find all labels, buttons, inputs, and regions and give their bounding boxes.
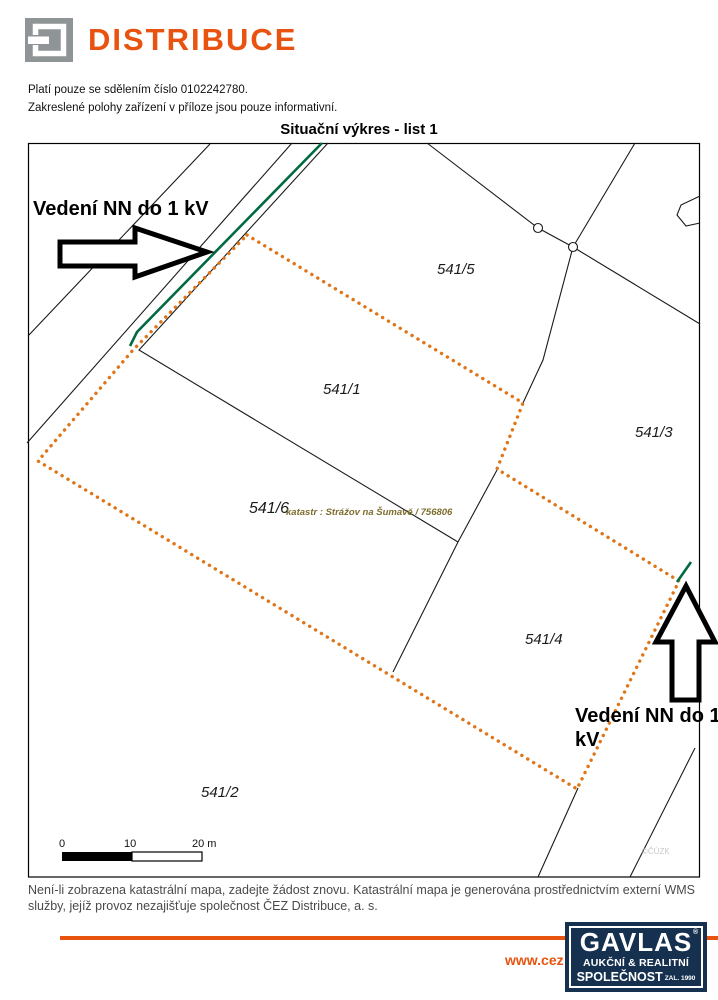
nn-label-bottom-line2: kV [575,729,599,752]
validity-note: Platí pouze se sdělením číslo 0102242780… [28,84,248,96]
gavlas-wordmark: GAVLAS® [580,929,692,955]
parcel-label-541-4: 541/4 [525,631,563,648]
scale-tick-10: 10 [124,838,136,850]
parcel-label-541-6: 541/6 [249,500,289,518]
cadastre-note: katastr : Strážov na Šumavě / 756806 [286,507,452,518]
nn-label-top: Vedení NN do 1 kV [33,198,209,221]
parcel-label-541-3: 541/3 [635,424,673,441]
cez-logo-icon [25,18,73,62]
gavlas-logo: GAVLAS® AUKČNÍ & REALITNÍ SPOLEČNOSTZAL.… [565,922,707,992]
arrow-right-icon [60,228,207,277]
scale-bar [62,852,202,861]
informative-note: Zakreslené polohy zařízení v příloze jso… [28,102,337,114]
website-link[interactable]: www.cez [505,952,564,968]
parcel-label-541-1: 541/1 [323,381,361,398]
gavlas-tagline1: AUKČNÍ & REALITNÍ [583,958,689,969]
gavlas-registered-mark: ® [693,929,699,936]
scale-tick-0: 0 [59,838,65,850]
map-watermark: ©ČÚZK [642,847,670,856]
annotation-arrows [60,228,715,700]
gavlas-tagline2: SPOLEČNOSTZAL. 1990 [577,971,696,984]
gavlas-tagline2-text: SPOLEČNOST [577,970,663,984]
scale-tick-20: 20 m [192,838,216,850]
gavlas-since: ZAL. 1990 [665,975,696,982]
page: { "page": { "header": { "brand": "DISTRI… [0,0,718,1000]
right-edge-structure [677,196,700,226]
gavlas-name-text: GAVLAS [580,927,692,957]
nn-line-bottom [677,562,691,582]
map-title: Situační výkres - list 1 [0,121,718,138]
parcel-label-541-2: 541/2 [201,784,239,801]
parcel-label-541-5: 541/5 [437,261,475,278]
nn-label-bottom-line1: Vedení NN do 1 [575,705,718,728]
map-canvas [0,0,718,1000]
brand-wordmark: DISTRIBUCE [88,22,297,58]
arrow-up-icon [656,586,715,700]
